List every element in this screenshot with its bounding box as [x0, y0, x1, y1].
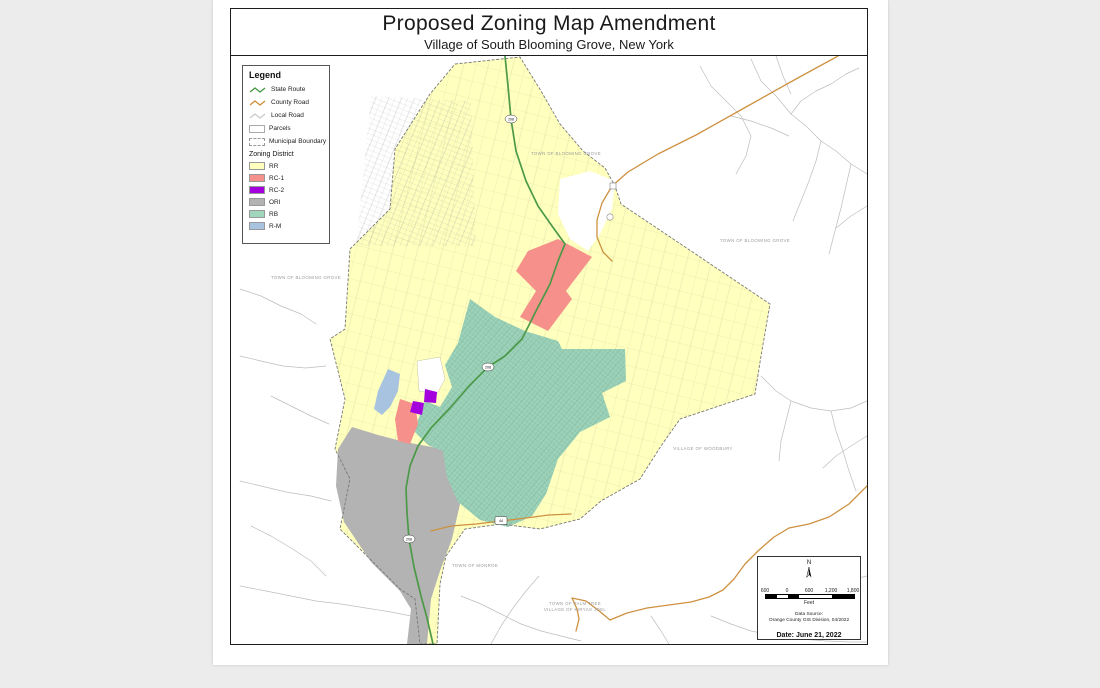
subdivision-texture	[356, 96, 476, 246]
map-date-label: Date: June 21, 2022	[777, 632, 842, 639]
label-town-of-monroe: TOWN OF MONROE	[452, 563, 498, 568]
scale-tick: 600	[761, 588, 769, 594]
legend-item-label: Municipal Boundary	[269, 138, 326, 145]
legend-item-county-road: County Road	[249, 96, 329, 109]
map-title: Proposed Zoning Map Amendment	[231, 12, 867, 36]
map-frame: Proposed Zoning Map Amendment Village of…	[230, 8, 868, 645]
legend-item-rc2: RC-2	[249, 184, 329, 196]
rc1-swatch	[249, 174, 265, 182]
svg-text:208: 208	[406, 537, 412, 541]
label-town-of-palm-tree: TOWN OF PALM TREE	[549, 601, 601, 606]
legend-item-label: State Route	[271, 86, 305, 93]
county-road-marker	[610, 183, 616, 189]
svg-text:208: 208	[485, 365, 491, 369]
legend-item-state-route: State Route	[249, 83, 329, 96]
legend-item-label: RB	[269, 211, 278, 218]
rb-swatch	[249, 210, 265, 218]
rr-swatch	[249, 162, 265, 170]
scale-tick-labels: 600 0 600 1,200 1,800	[765, 588, 853, 594]
legend-panel: Legend State Route County Road	[242, 65, 330, 244]
legend-title: Legend	[249, 70, 329, 80]
legend-item-label: Parcels	[269, 125, 291, 132]
scale-unit-label: Feet	[765, 600, 853, 606]
county-road-swatch-icon	[249, 99, 267, 107]
legend-item-label: R-M	[269, 223, 281, 230]
map-area: 208 208 208 44 TOWN OF BLOOMING GROVE TO…	[231, 56, 867, 644]
legend-item-local-road: Local Road	[249, 109, 329, 122]
label-town-of-blooming-grove-west: TOWN OF BLOOMING GROVE	[271, 275, 341, 280]
legend-item-rr: RR	[249, 160, 329, 172]
data-source-line2: Orange County GIS Division, 04/2022	[769, 618, 849, 624]
water-feature-marker	[607, 214, 613, 220]
legend-item-parcels: Parcels	[249, 122, 329, 135]
legend-item-label: County Road	[271, 99, 309, 106]
data-source-text: Data Source: Orange County GIS Division,…	[769, 612, 849, 624]
parcels-swatch	[249, 125, 265, 133]
rm-swatch	[249, 222, 265, 230]
legend-item-municipal-boundary: Municipal Boundary	[249, 135, 329, 148]
map-subtitle: Village of South Blooming Grove, New Yor…	[231, 37, 867, 52]
svg-text:44: 44	[499, 519, 503, 523]
scale-tick: 1,200	[825, 588, 838, 594]
legend-item-label: Local Road	[271, 112, 304, 119]
legend-item-ori: ORI	[249, 196, 329, 208]
svg-text:208: 208	[508, 117, 514, 121]
legend-item-rb: RB	[249, 208, 329, 220]
label-village-of-kiryas-joel: VILLAGE OF KIRYAS JOEL	[544, 607, 607, 612]
rc2-swatch	[249, 186, 265, 194]
scale-tick: 0	[786, 588, 789, 594]
scale-tick: 600	[805, 588, 813, 594]
map-document-page: Proposed Zoning Map Amendment Village of…	[213, 0, 888, 665]
legend-item-label: RC-2	[269, 187, 284, 194]
legend-item-label: RR	[269, 163, 278, 170]
legend-item-label: RC-1	[269, 175, 284, 182]
desktop-background: { "title": { "main": "Proposed Zoning Ma…	[0, 0, 1100, 688]
local-road-swatch-icon	[249, 112, 267, 120]
label-town-of-blooming-grove-east: TOWN OF BLOOMING GROVE	[720, 238, 790, 243]
zoning-district-heading: Zoning District	[249, 151, 329, 158]
legend-item-rc1: RC-1	[249, 172, 329, 184]
scale-north-panel: N 600 0 600 1,200 1,800	[757, 556, 861, 640]
state-route-swatch-icon	[249, 86, 267, 94]
scale-bar-segments	[765, 594, 855, 599]
scale-tick: 1,800	[847, 588, 860, 594]
legend-item-rm: R-M	[249, 220, 329, 232]
north-arrow-icon	[803, 566, 815, 579]
label-village-of-woodbury: VILLAGE OF WOODBURY	[673, 446, 733, 451]
scale-bar: 600 0 600 1,200 1,800 Feet	[765, 588, 853, 606]
legend-item-label: ORI	[269, 199, 281, 206]
ori-swatch	[249, 198, 265, 206]
label-town-of-blooming-grove-north: TOWN OF BLOOMING GROVE	[531, 151, 601, 156]
municipal-boundary-swatch	[249, 138, 265, 146]
title-box: Proposed Zoning Map Amendment Village of…	[231, 9, 867, 56]
